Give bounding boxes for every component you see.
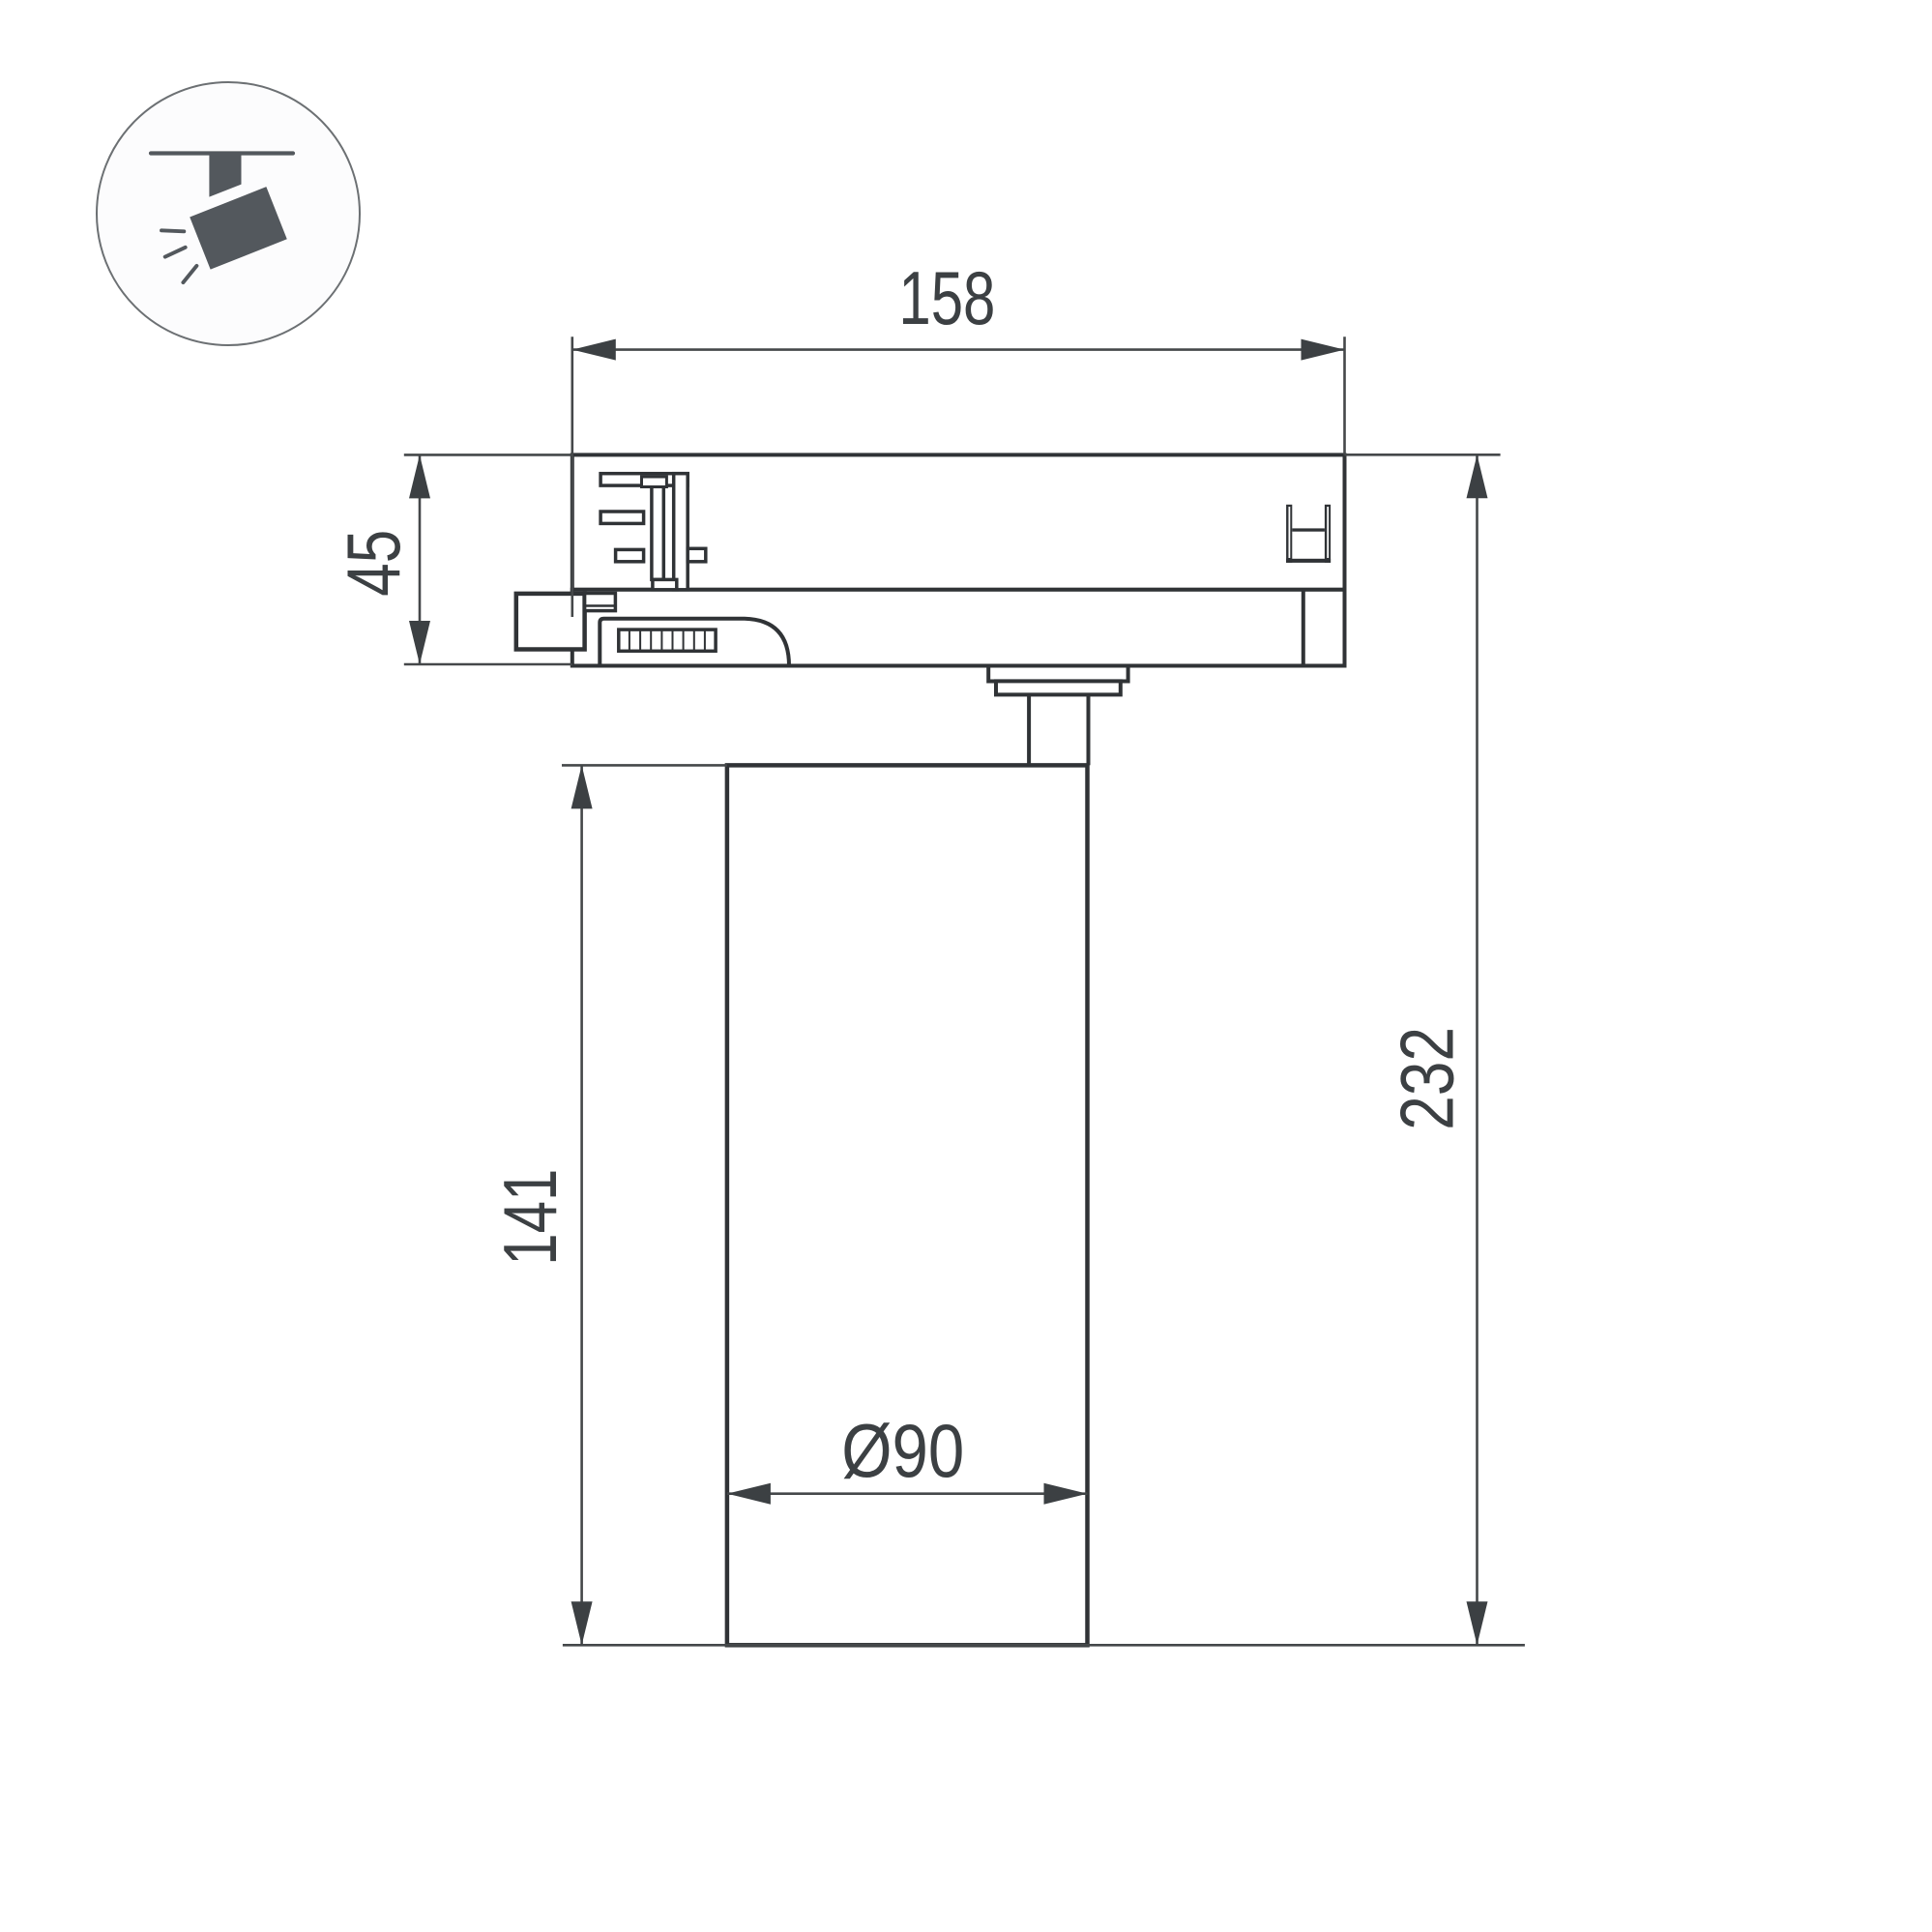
svg-text:45: 45	[331, 530, 416, 597]
svg-text:232: 232	[1385, 1027, 1470, 1130]
svg-text:Ø90: Ø90	[841, 1408, 964, 1493]
svg-text:158: 158	[898, 255, 995, 340]
svg-text:141: 141	[487, 1169, 572, 1266]
